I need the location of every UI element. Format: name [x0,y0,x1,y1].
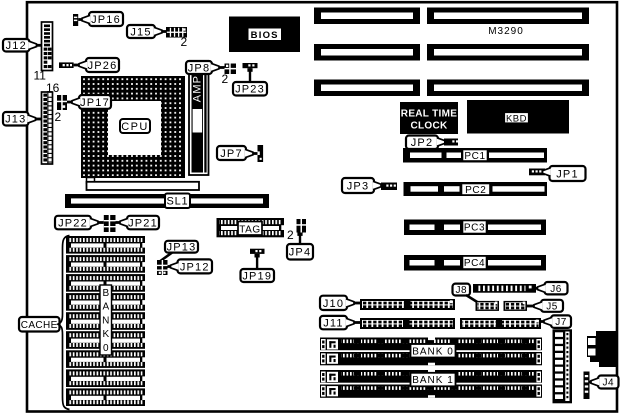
svg-text:JP21: JP21 [128,218,158,230]
svg-text:SL1: SL1 [167,196,189,208]
svg-text:M3290: M3290 [488,26,524,37]
svg-text:J5: J5 [546,301,558,312]
svg-text:K: K [102,329,109,340]
svg-text:PC2: PC2 [465,185,486,196]
svg-text:J15: J15 [130,27,151,39]
svg-text:AMP: AMP [192,75,204,102]
svg-text:CPU: CPU [121,121,148,133]
svg-text:2: 2 [222,72,229,86]
svg-text:J7: J7 [555,317,567,328]
svg-text:REAL TIME: REAL TIME [401,109,457,120]
svg-text:J6: J6 [550,284,562,295]
svg-text:JP12: JP12 [180,261,210,273]
svg-text:J12: J12 [6,40,27,52]
svg-text:JP3: JP3 [347,181,370,193]
svg-text:J8: J8 [455,285,467,296]
svg-text:J13: J13 [5,114,26,126]
svg-text:0: 0 [103,343,109,354]
svg-text:N: N [102,315,109,326]
svg-text:JP2: JP2 [411,137,434,149]
svg-text:CACHE: CACHE [21,320,58,331]
svg-text:JP1: JP1 [556,169,579,181]
svg-text:PC3: PC3 [464,223,485,234]
svg-text:BIOS: BIOS [251,30,279,41]
svg-text:JP19: JP19 [242,271,272,283]
svg-text:PC1: PC1 [464,151,485,162]
svg-text:JP7: JP7 [220,148,243,160]
svg-text:J4: J4 [602,378,614,389]
svg-text:BANK 0: BANK 0 [412,346,454,357]
svg-text:11: 11 [34,69,47,83]
svg-text:2: 2 [287,228,294,242]
svg-text:JP4: JP4 [289,247,312,259]
svg-text:JP26: JP26 [88,60,118,72]
svg-text:J11: J11 [323,318,344,330]
svg-text:B: B [102,288,109,299]
svg-text:PC4: PC4 [464,258,485,269]
svg-text:JP17: JP17 [80,97,110,109]
svg-text:BANK 1: BANK 1 [412,375,454,386]
svg-text:J10: J10 [323,298,344,310]
svg-text:A: A [102,302,109,313]
svg-text:KBD: KBD [506,113,527,124]
svg-text:JP16: JP16 [91,14,121,26]
svg-text:JP22: JP22 [58,218,88,230]
svg-text:JP8: JP8 [188,63,211,75]
svg-text:2: 2 [55,110,62,124]
svg-text:2: 2 [181,35,188,49]
svg-text:JP23: JP23 [235,84,265,96]
svg-text:CLOCK: CLOCK [410,121,448,132]
svg-text:TAG: TAG [239,224,261,235]
